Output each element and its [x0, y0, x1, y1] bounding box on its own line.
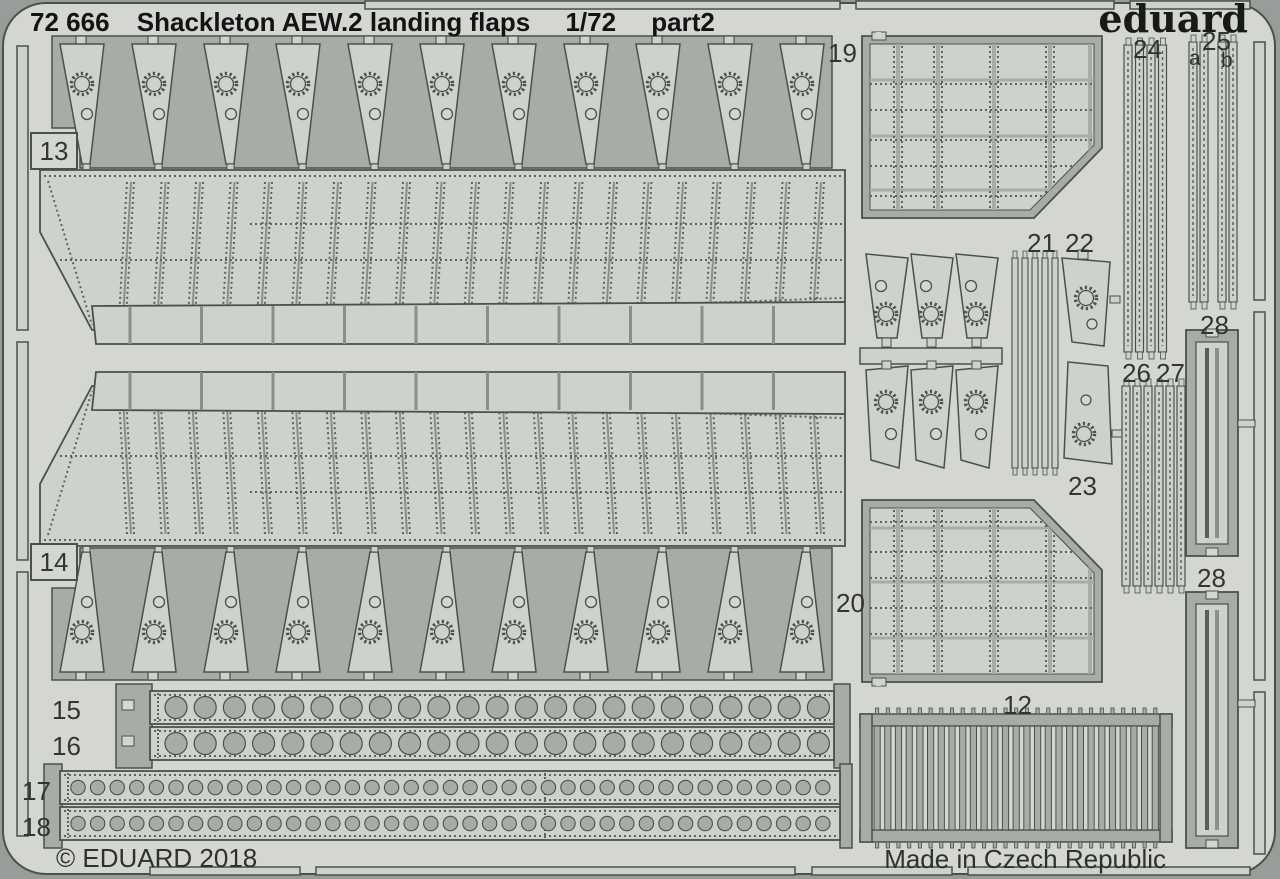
- part-20-grid: [862, 500, 1102, 686]
- part-17-strip: [60, 771, 840, 804]
- part-label-13: 13: [30, 132, 78, 170]
- part-16-strip: [150, 727, 834, 760]
- sheet-header: 72 666 Shackleton AEW.2 landing flaps 1/…: [30, 7, 715, 37]
- part-label-23: 23: [1068, 473, 1097, 499]
- part-23-panel: [1064, 362, 1112, 464]
- part-15-strip: [150, 691, 834, 724]
- part-13-flap: [40, 36, 845, 344]
- part-22-panel: [1062, 250, 1110, 346]
- part-label-27: 27: [1156, 360, 1185, 386]
- part-25a-strips: [1189, 35, 1208, 309]
- middle-assembly: [860, 250, 1122, 475]
- pe-fret-product-image: 72 666 Shackleton AEW.2 landing flaps 1/…: [0, 0, 1280, 879]
- part-label-26: 26: [1122, 360, 1151, 386]
- blade-upper: [866, 254, 908, 347]
- blade-upper: [956, 254, 998, 347]
- part-label-18: 18: [22, 814, 51, 840]
- part-14-flap: [40, 372, 845, 680]
- part-label-25b: b: [1221, 50, 1233, 71]
- product-title: Shackleton AEW.2 landing flaps: [137, 7, 530, 38]
- parts-26-27-strips: [1122, 379, 1185, 593]
- blade-upper: [911, 254, 953, 347]
- flap-sub-band: [92, 302, 845, 344]
- part-label-21: 21: [1027, 230, 1056, 256]
- part-number-text: part2: [651, 7, 715, 38]
- pe-sheet-drawing: [0, 0, 1280, 879]
- part-label-15: 15: [52, 697, 81, 723]
- blade-lower: [956, 361, 998, 468]
- flap-sub-band: [92, 372, 845, 414]
- part-label-12: 12: [1003, 692, 1032, 718]
- part-label-14: 14: [30, 543, 78, 581]
- part-label-25a: a: [1189, 48, 1201, 69]
- part-28-top-plate: [1186, 329, 1238, 556]
- part-label-28-top: 28: [1200, 312, 1229, 338]
- part-18-strip: [60, 807, 840, 840]
- part-label-17: 17: [22, 778, 51, 804]
- part-24-strips: [1124, 38, 1167, 359]
- blade-lower: [911, 361, 953, 468]
- part-21-strips: [1012, 251, 1058, 475]
- made-in-text: Made in Czech Republic: [884, 844, 1166, 875]
- part-label-28-bottom: 28: [1197, 565, 1226, 591]
- part-25b-strips: [1218, 35, 1237, 309]
- part-label-19: 19: [828, 40, 857, 66]
- scale-text: 1/72: [565, 7, 616, 38]
- part-12-comb: [860, 708, 1172, 848]
- copyright-text: © EDUARD 2018: [56, 843, 257, 874]
- blade-lower: [866, 361, 908, 468]
- part-label-22: 22: [1065, 230, 1094, 256]
- parts-17-18-strips: [44, 764, 852, 848]
- part-label-24: 24: [1133, 36, 1162, 62]
- catalog-number: 72 666: [30, 7, 110, 38]
- part-28-bottom-plate: [1186, 591, 1238, 848]
- part-19-grid: [862, 32, 1102, 218]
- parts-15-16-strips: [116, 684, 850, 768]
- part-label-16: 16: [52, 733, 81, 759]
- part-label-20: 20: [836, 590, 865, 616]
